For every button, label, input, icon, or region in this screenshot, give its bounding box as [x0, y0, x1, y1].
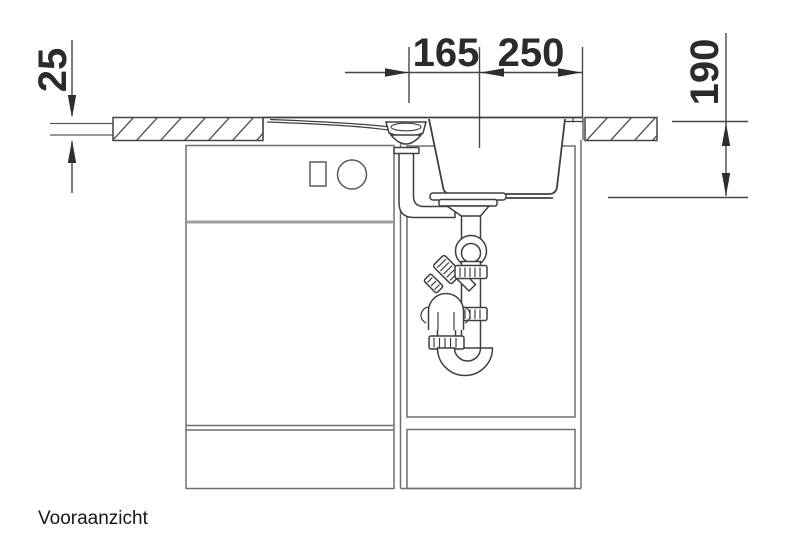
u-trap-bend — [438, 348, 493, 375]
dimension-countertop-thickness: 25 — [31, 40, 76, 193]
dim-250-label: 250 — [498, 31, 565, 75]
drainboard-drain-cup — [391, 135, 421, 144]
arrow-right-icon — [558, 68, 582, 76]
compression-nut-lower — [429, 336, 464, 349]
countertop — [50, 117, 674, 141]
arrow-right-icon — [385, 68, 409, 76]
sink-installation-drawing: 25 165 250 190 Vooraanzicht — [0, 0, 800, 558]
arrow-up-icon — [722, 123, 730, 146]
dim-190-label: 190 — [683, 39, 727, 106]
cabinet-left-outline — [186, 146, 394, 489]
drainboard-drain-collar — [394, 148, 419, 154]
arrow-down-icon — [722, 173, 730, 196]
sink-bowl-fill — [429, 117, 565, 194]
outlet-elbow-arch — [429, 294, 464, 331]
base-cabinet-left — [186, 146, 394, 489]
drain-body — [439, 200, 497, 207]
arrow-down-icon — [68, 95, 76, 118]
branch-end-cap — [424, 274, 444, 294]
drainboard-slope-line — [267, 122, 388, 130]
arrow-left-icon — [481, 68, 505, 76]
compression-nut-upper — [455, 266, 487, 279]
dim-165-label: 165 — [413, 31, 480, 75]
ball-joint-inner — [462, 244, 481, 263]
arrow-up-icon — [68, 141, 76, 164]
technical-drawing-front-view: 25 165 250 190 Vooraanzicht — [0, 0, 800, 558]
drawer-cutout-rect — [310, 162, 326, 186]
dim-25-label: 25 — [31, 48, 75, 93]
dimension-bowl-depth: 190 — [608, 33, 748, 198]
view-caption: Vooraanzicht — [38, 508, 149, 529]
sink-cabinet-plinth — [407, 430, 575, 489]
drawer-cutout-circle — [338, 160, 367, 189]
